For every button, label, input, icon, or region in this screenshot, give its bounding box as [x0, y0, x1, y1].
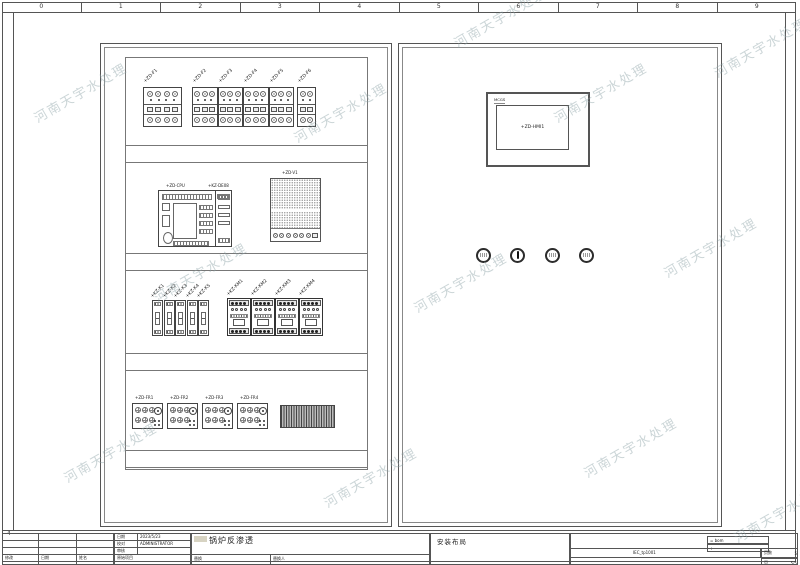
shape: [235, 107, 241, 112]
relay: [175, 300, 186, 336]
shape: [259, 302, 262, 305]
modify-label: 修改: [3, 555, 39, 564]
component-detail: [193, 89, 217, 98]
shape: [286, 117, 292, 123]
breaker-label: +ZD-F5: [269, 69, 284, 84]
shape: [204, 99, 206, 101]
breaker-label: +ZD-F6: [298, 69, 313, 84]
thermal-relay-dial: [259, 407, 267, 415]
shape: [227, 117, 233, 123]
shape: [315, 330, 318, 333]
shape: [205, 407, 211, 413]
circuit-breaker: [297, 87, 316, 127]
shape: [158, 420, 160, 422]
shape: [279, 330, 282, 333]
shape: [311, 330, 314, 333]
shape: [240, 308, 243, 311]
component-detail: [219, 99, 243, 102]
shape: [155, 107, 161, 112]
shape: [147, 117, 153, 123]
relay: [198, 300, 209, 336]
shape: [154, 302, 161, 306]
thermal-relay-dial: [224, 407, 232, 415]
reviewed-label: 审核: [115, 548, 138, 555]
shape: [205, 417, 211, 423]
shape: [271, 117, 277, 123]
shape: [312, 308, 315, 311]
shape: [178, 312, 183, 325]
shape: [309, 99, 311, 101]
shape: [239, 330, 242, 333]
shape: [254, 314, 272, 318]
shape: [291, 302, 294, 305]
approval-grid: 日期 2023/5/23 校对 ADMINISTRATOR 审核 原始项目: [114, 533, 191, 565]
shape: [247, 407, 253, 413]
shape: [170, 417, 176, 423]
shape: [202, 107, 208, 112]
shape: [303, 302, 306, 305]
component-detail: [270, 104, 294, 115]
shape: [212, 417, 218, 423]
shape: [235, 302, 238, 305]
shape: [164, 91, 170, 97]
shape: [177, 330, 184, 334]
component-detail: [298, 99, 315, 102]
shape: [253, 91, 259, 97]
shape: [253, 117, 259, 123]
shape: [135, 417, 141, 423]
shape: [244, 308, 247, 311]
shape: [147, 107, 153, 112]
shape: [243, 330, 246, 333]
component-detail: [277, 328, 297, 334]
breaker-label: +ZD-F4: [244, 69, 259, 84]
shape: [274, 99, 276, 101]
shape: [230, 314, 248, 318]
thermal-relay: [202, 403, 233, 429]
shape: [288, 308, 291, 311]
component-detail: [229, 300, 249, 306]
shape: [172, 107, 178, 112]
circuit-breaker: [143, 87, 182, 127]
relay: [152, 300, 163, 336]
shape: [235, 91, 241, 97]
shape: [307, 302, 310, 305]
shape: [303, 330, 306, 333]
shape: [190, 312, 195, 325]
shape: [209, 107, 215, 112]
hmi-label: +ZD-HMI1: [521, 125, 544, 130]
shape: [271, 107, 277, 112]
shape: [283, 302, 286, 305]
shape: [154, 420, 156, 422]
shape: [307, 107, 313, 112]
shape: [231, 330, 234, 333]
relay: [187, 300, 198, 336]
pages-label: 页数: [764, 550, 772, 556]
component-detail: [253, 328, 273, 334]
component-detail: [253, 308, 273, 312]
contactor-label: +KZ-KM2: [251, 279, 269, 297]
contactor: [227, 298, 251, 336]
thermal-relay: [167, 403, 198, 429]
pages-value: 5: [794, 551, 797, 556]
shape: [255, 99, 257, 101]
shape: [142, 407, 148, 413]
page-label: 页: [764, 560, 768, 565]
shape: [154, 424, 156, 426]
component-detail: [298, 104, 315, 115]
shape: [302, 314, 320, 318]
shape: [267, 330, 270, 333]
shape: [233, 319, 245, 326]
shape: [158, 99, 160, 101]
date-col-label: 日期: [39, 555, 77, 564]
shape: [257, 319, 269, 326]
shape: [200, 330, 207, 334]
shape: [236, 99, 238, 101]
contactor-label: +KZ-KM3: [275, 279, 293, 297]
shape: [287, 99, 289, 101]
shape: [259, 330, 262, 333]
relay: [164, 300, 175, 336]
shape: [224, 420, 226, 422]
component-detail: [270, 116, 294, 125]
shape: [227, 107, 233, 112]
subtitle-cell: 安装布局: [430, 533, 570, 565]
shape: [267, 302, 270, 305]
thermal-relay-dial: [154, 407, 162, 415]
title-block-top-line: [2, 530, 796, 531]
shape: [164, 107, 170, 112]
circuit-breaker: [192, 87, 218, 127]
shape: [278, 314, 296, 318]
shape: [286, 107, 292, 112]
shape: [166, 302, 173, 306]
shape: [268, 308, 271, 311]
component-detail: [277, 308, 297, 312]
shape: [209, 117, 215, 123]
orig-project-label: 原始项目: [115, 555, 190, 564]
shape: [165, 99, 167, 101]
contactor: [251, 298, 275, 336]
shape: [173, 99, 175, 101]
component-detail: [298, 89, 315, 98]
breaker-label: +ZD-F2: [193, 69, 208, 84]
shape: [263, 302, 266, 305]
shape: [278, 117, 284, 123]
shape: [307, 91, 313, 97]
date-value: 2023/5/23: [138, 534, 190, 541]
shape: [316, 308, 319, 311]
page-value: 5/5: [791, 561, 797, 565]
shape: [220, 117, 226, 123]
component-detail: [301, 328, 321, 334]
shape: [154, 330, 161, 334]
component-detail: [193, 104, 217, 115]
shape: [300, 117, 306, 123]
shape: [209, 91, 215, 97]
shape: [189, 424, 191, 426]
shape: [280, 99, 282, 101]
shape: [263, 424, 265, 426]
shape: [189, 302, 196, 306]
shape: [255, 330, 258, 333]
shape: [292, 308, 295, 311]
shape: [177, 302, 184, 306]
shape: [245, 91, 251, 97]
shape: [167, 312, 172, 325]
revision-grid: 修改 日期 姓名: [2, 533, 114, 565]
circuit-breaker: [269, 87, 295, 127]
date-label: 日期: [115, 534, 138, 541]
checked-label: 校对: [115, 541, 138, 548]
shape: [260, 107, 266, 112]
shape: [311, 302, 314, 305]
shape: [287, 330, 290, 333]
shape: [259, 308, 262, 311]
shape: [164, 117, 170, 123]
replace-label: 替换: [192, 555, 271, 564]
shape: [194, 117, 200, 123]
component-detail: [253, 300, 273, 306]
shape: [263, 330, 266, 333]
shape: [245, 107, 251, 112]
shape: [279, 302, 282, 305]
breaker-label: +ZD-F1: [144, 69, 159, 84]
thermal-relay-dial: [189, 407, 197, 415]
shape: [194, 91, 200, 97]
shape: [303, 308, 306, 311]
shape: [260, 117, 266, 123]
contactor: [275, 298, 299, 336]
component-detail: [301, 308, 321, 312]
shape: [197, 99, 199, 101]
replace-by-label: 替换人: [271, 555, 429, 564]
name-col-label: 姓名: [77, 555, 115, 564]
shape: [255, 308, 258, 311]
shape: [240, 417, 246, 423]
thermal-relay-label: +ZD-FR3: [205, 396, 223, 400]
shape: [283, 330, 286, 333]
shape: [220, 91, 226, 97]
shape: [307, 330, 310, 333]
component-detail: [298, 116, 315, 125]
component-detail: [144, 104, 181, 115]
shape: [261, 99, 263, 101]
shape: [231, 302, 234, 305]
shape: [227, 91, 233, 97]
shape: [147, 91, 153, 97]
shape: [287, 302, 290, 305]
component-detail: [229, 328, 249, 334]
shape: [170, 407, 176, 413]
shape: [193, 424, 195, 426]
hmi-screen: +ZD-HMI1: [496, 105, 569, 150]
shape: [223, 99, 225, 101]
thermal-relay: [237, 403, 268, 429]
shape: [228, 420, 230, 422]
shape: [259, 424, 261, 426]
shape: [235, 308, 238, 311]
component-detail: [144, 116, 181, 125]
thermal-relay-label: +ZD-FR4: [240, 396, 258, 400]
bom-ref: = bom: [707, 536, 769, 544]
drawing-subtitle: 安装布局: [437, 536, 467, 546]
shape: [235, 330, 238, 333]
component-detail: [219, 89, 243, 98]
component-detail: [219, 104, 243, 115]
shape: [202, 91, 208, 97]
reference-cell: = bom + IEC_tp1001 页数 5 页 5/5: [570, 533, 798, 565]
component-detail: [277, 300, 297, 306]
shape: [315, 302, 318, 305]
shape: [243, 302, 246, 305]
shape: [201, 312, 206, 325]
shape: [172, 117, 178, 123]
circuit-breaker: [243, 87, 269, 127]
component-detail: [270, 89, 294, 98]
shape: [142, 417, 148, 423]
shape: [305, 319, 317, 326]
shape: [172, 91, 178, 97]
shape: [177, 417, 183, 423]
contactor: [299, 298, 323, 336]
shape: [177, 407, 183, 413]
shape: [155, 117, 161, 123]
shape: [194, 107, 200, 112]
shape: [271, 91, 277, 97]
contactor-label: +KZ-KM1: [227, 279, 245, 297]
shape: [253, 107, 259, 112]
drawing-sheet: 0123456789 4 +ZD-CPU +KZ-DE08 +ZD-V1: [0, 0, 800, 565]
component-detail: [270, 99, 294, 102]
shape: [200, 302, 207, 306]
component-detail: [244, 99, 268, 102]
shape: [248, 99, 250, 101]
shape: [220, 107, 226, 112]
component-detail: [144, 89, 181, 98]
thermal-relay-label: +ZD-FR2: [170, 396, 188, 400]
component-detail: [193, 99, 217, 102]
shape: [259, 420, 261, 422]
component-detail: [244, 104, 268, 115]
thermal-relay-label: +ZD-FR1: [135, 396, 153, 400]
shape: [307, 117, 313, 123]
shape: [189, 330, 196, 334]
shape: [155, 91, 161, 97]
drawing-title: 锅炉反渗透: [209, 535, 254, 546]
thermal-relay: [132, 403, 163, 429]
shape: [189, 420, 191, 422]
shape: [278, 91, 284, 97]
shape: [210, 99, 212, 101]
shape: [302, 99, 304, 101]
shape: [264, 308, 267, 311]
shape: [231, 308, 234, 311]
shape: [155, 312, 160, 325]
shape: [307, 308, 310, 311]
shape: [278, 107, 284, 112]
shape: [224, 424, 226, 426]
shape: [239, 302, 242, 305]
shape: [263, 420, 265, 422]
component-detail: [144, 99, 181, 102]
shape: [286, 91, 292, 97]
contactor-label: +KZ-KM4: [299, 279, 317, 297]
hmi-brand: MCGS: [494, 97, 505, 104]
shape: [193, 420, 195, 422]
shape: [212, 407, 218, 413]
component-detail: [219, 116, 243, 125]
shape: [166, 330, 173, 334]
shape: [255, 302, 258, 305]
shape: [245, 117, 251, 123]
shape: [283, 308, 286, 311]
shape: [228, 424, 230, 426]
title-cell: 锅炉反渗透 替换 替换人: [191, 533, 430, 565]
shape: [235, 117, 241, 123]
shape: [279, 308, 282, 311]
shape: [202, 117, 208, 123]
shape: [281, 319, 293, 326]
shape: [300, 91, 306, 97]
shape: [135, 407, 141, 413]
shape: [240, 407, 246, 413]
shape: [300, 107, 306, 112]
component-detail: [229, 308, 249, 312]
shape: [247, 417, 253, 423]
breaker-label: +ZD-F3: [218, 69, 233, 84]
shape: [150, 99, 152, 101]
shape: [158, 424, 160, 426]
component-detail: [193, 116, 217, 125]
component-detail: [301, 300, 321, 306]
shape: [260, 91, 266, 97]
shape: [229, 99, 231, 101]
drawing-number: IEC_tp1001: [571, 548, 761, 558]
hmi-panel: MCGS +ZD-HMI1: [486, 92, 590, 167]
title-highlight: [194, 536, 207, 542]
shape: [291, 330, 294, 333]
component-detail: [244, 89, 268, 98]
component-detail: [244, 116, 268, 125]
checked-value: ADMINISTRATOR: [138, 541, 190, 548]
circuit-breaker: [218, 87, 244, 127]
